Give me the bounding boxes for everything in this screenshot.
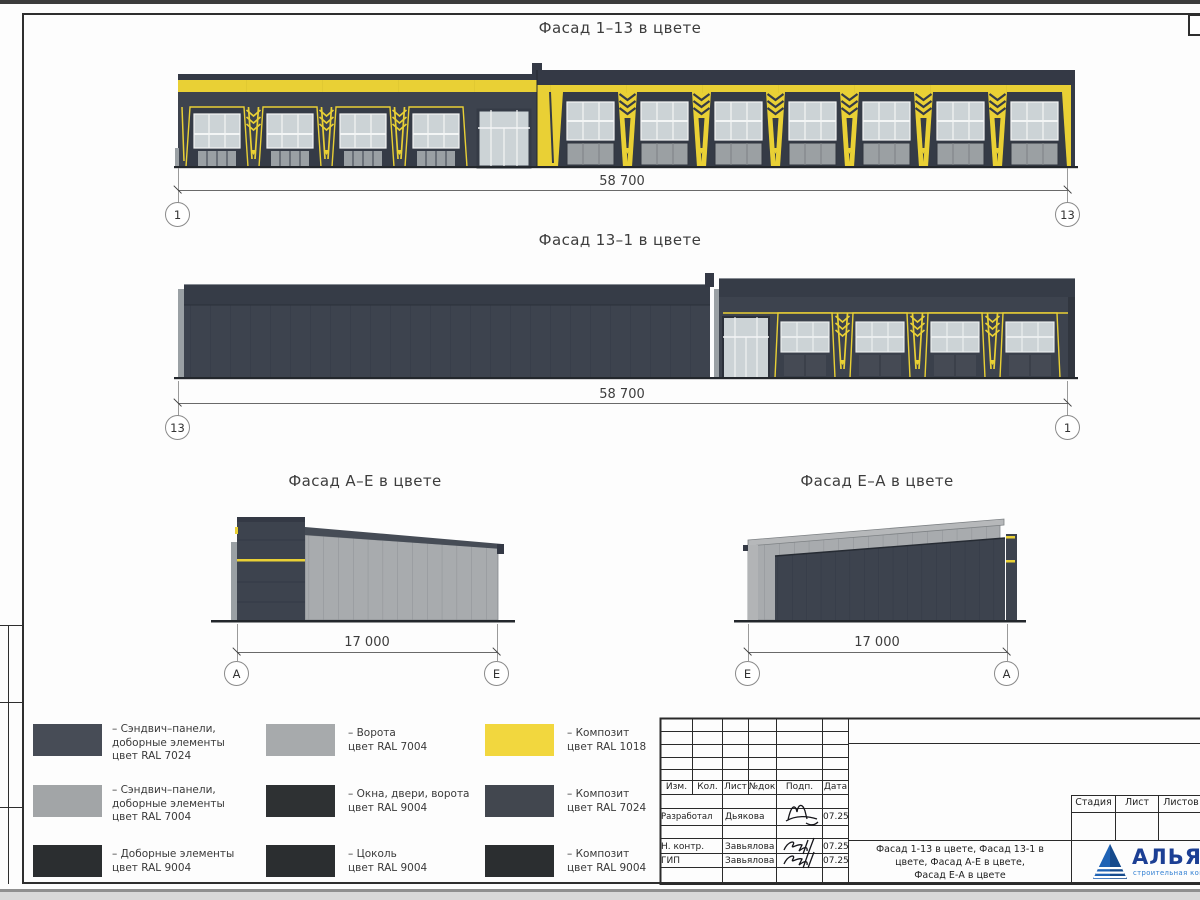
extension-line	[237, 624, 238, 661]
drawing-sheet: Фасад 1–13 в цвете	[0, 0, 1200, 900]
tb-col-header: Изм.	[661, 782, 692, 792]
axis-marker: 13	[165, 415, 190, 440]
view-title-facade-e-a: Фасад Е–А в цвете	[727, 472, 1027, 490]
side-column-divider	[0, 807, 23, 808]
axis-marker: А	[224, 661, 249, 686]
dimension-label: 17 000	[777, 635, 977, 650]
view-title-facade-13-1: Фасад 13–1 в цвете	[420, 231, 820, 249]
tb-name: Дьякова	[725, 812, 765, 822]
legend-label: – Цокольцвет RAL 9004	[348, 848, 427, 875]
tb-stage-header: Стадия	[1072, 797, 1115, 808]
dimension-line	[178, 190, 1068, 191]
tb-date: 07.25	[823, 842, 848, 852]
legend-label: – Доборные элементыцвет RAL 9004	[112, 848, 234, 875]
axis-marker: Е	[735, 661, 760, 686]
dimension-line	[178, 403, 1068, 404]
tb-role: Разработал	[661, 812, 713, 822]
legend-swatch	[266, 724, 335, 756]
extension-line	[1007, 624, 1008, 661]
axis-marker: Е	[484, 661, 509, 686]
tb-sheet-header: Лист	[1116, 797, 1158, 808]
view-title-facade-1-13: Фасад 1–13 в цвете	[420, 19, 820, 37]
tb-name: Завьялова	[725, 856, 774, 866]
legend-swatch	[485, 785, 554, 817]
page-top-edge	[0, 0, 1200, 4]
tb-date: 07.25	[823, 812, 848, 822]
axis-marker: 1	[165, 202, 190, 227]
page-bottom-edge-light	[0, 892, 1200, 900]
company-name: АЛЬЯНС	[1132, 845, 1200, 869]
legend-label: – Окна, двери, воротацвет RAL 9004	[348, 788, 470, 815]
legend-swatch	[485, 724, 554, 756]
legend-label: – Воротацвет RAL 7004	[348, 727, 427, 754]
legend-label: – Сэндвич–панели,доборные элементыцвет R…	[112, 784, 225, 825]
side-column-divider	[0, 625, 23, 626]
dimension-line	[237, 652, 497, 653]
legend-swatch	[266, 845, 335, 877]
tb-col-header: Кол.	[693, 782, 722, 792]
tb-col-header: Дата	[823, 782, 848, 792]
extension-line	[748, 624, 749, 661]
tb-doc-title: Фасад 1-13 в цвете, Фасад 13-1 в цвете, …	[850, 843, 1070, 882]
legend-swatch	[33, 845, 102, 877]
tb-col-header: №док	[748, 782, 776, 792]
legend-swatch	[485, 845, 554, 877]
legend-label: – Сэндвич–панели,доборные элементыцвет R…	[112, 723, 225, 764]
tb-name: Завьялова	[725, 842, 774, 852]
view-title-facade-a-e: Фасад А–Е в цвете	[215, 472, 515, 490]
legend-label: – Композитцвет RAL 7024	[567, 788, 646, 815]
legend-label: – Композитцвет RAL 9004	[567, 848, 646, 875]
tb-sheets-header: Листов	[1159, 797, 1200, 808]
dimension-label: 58 700	[522, 174, 722, 189]
facade-e-a-drawing	[720, 500, 1040, 635]
tb-role: ГИП	[661, 856, 680, 866]
legend-swatch	[33, 724, 102, 756]
extension-line	[497, 624, 498, 661]
company-logo-icon	[1092, 843, 1128, 881]
tb-col-header: Подп.	[777, 782, 822, 792]
legend-swatch	[33, 785, 102, 817]
legend-label: – Композитцвет RAL 1018	[567, 727, 646, 754]
dimension-label: 17 000	[267, 635, 467, 650]
axis-marker: 13	[1055, 202, 1080, 227]
company-tagline: строительная компания	[1133, 869, 1200, 877]
signature	[784, 805, 818, 868]
tb-date: 07.25	[823, 856, 848, 866]
facade-1-13-drawing	[170, 58, 1085, 178]
corner-stamp-box	[1188, 14, 1200, 36]
dimension-label: 58 700	[522, 387, 722, 402]
tb-col-header: Лист	[723, 782, 748, 792]
legend-swatch	[266, 785, 335, 817]
axis-marker: 1	[1055, 415, 1080, 440]
dimension-line	[748, 652, 1007, 653]
side-column-line	[8, 625, 9, 884]
side-column-divider	[0, 702, 23, 703]
tb-role: Н. контр.	[661, 842, 704, 852]
axis-marker: А	[994, 661, 1019, 686]
facade-13-1-drawing	[170, 265, 1085, 395]
facade-a-e-drawing	[205, 500, 525, 635]
